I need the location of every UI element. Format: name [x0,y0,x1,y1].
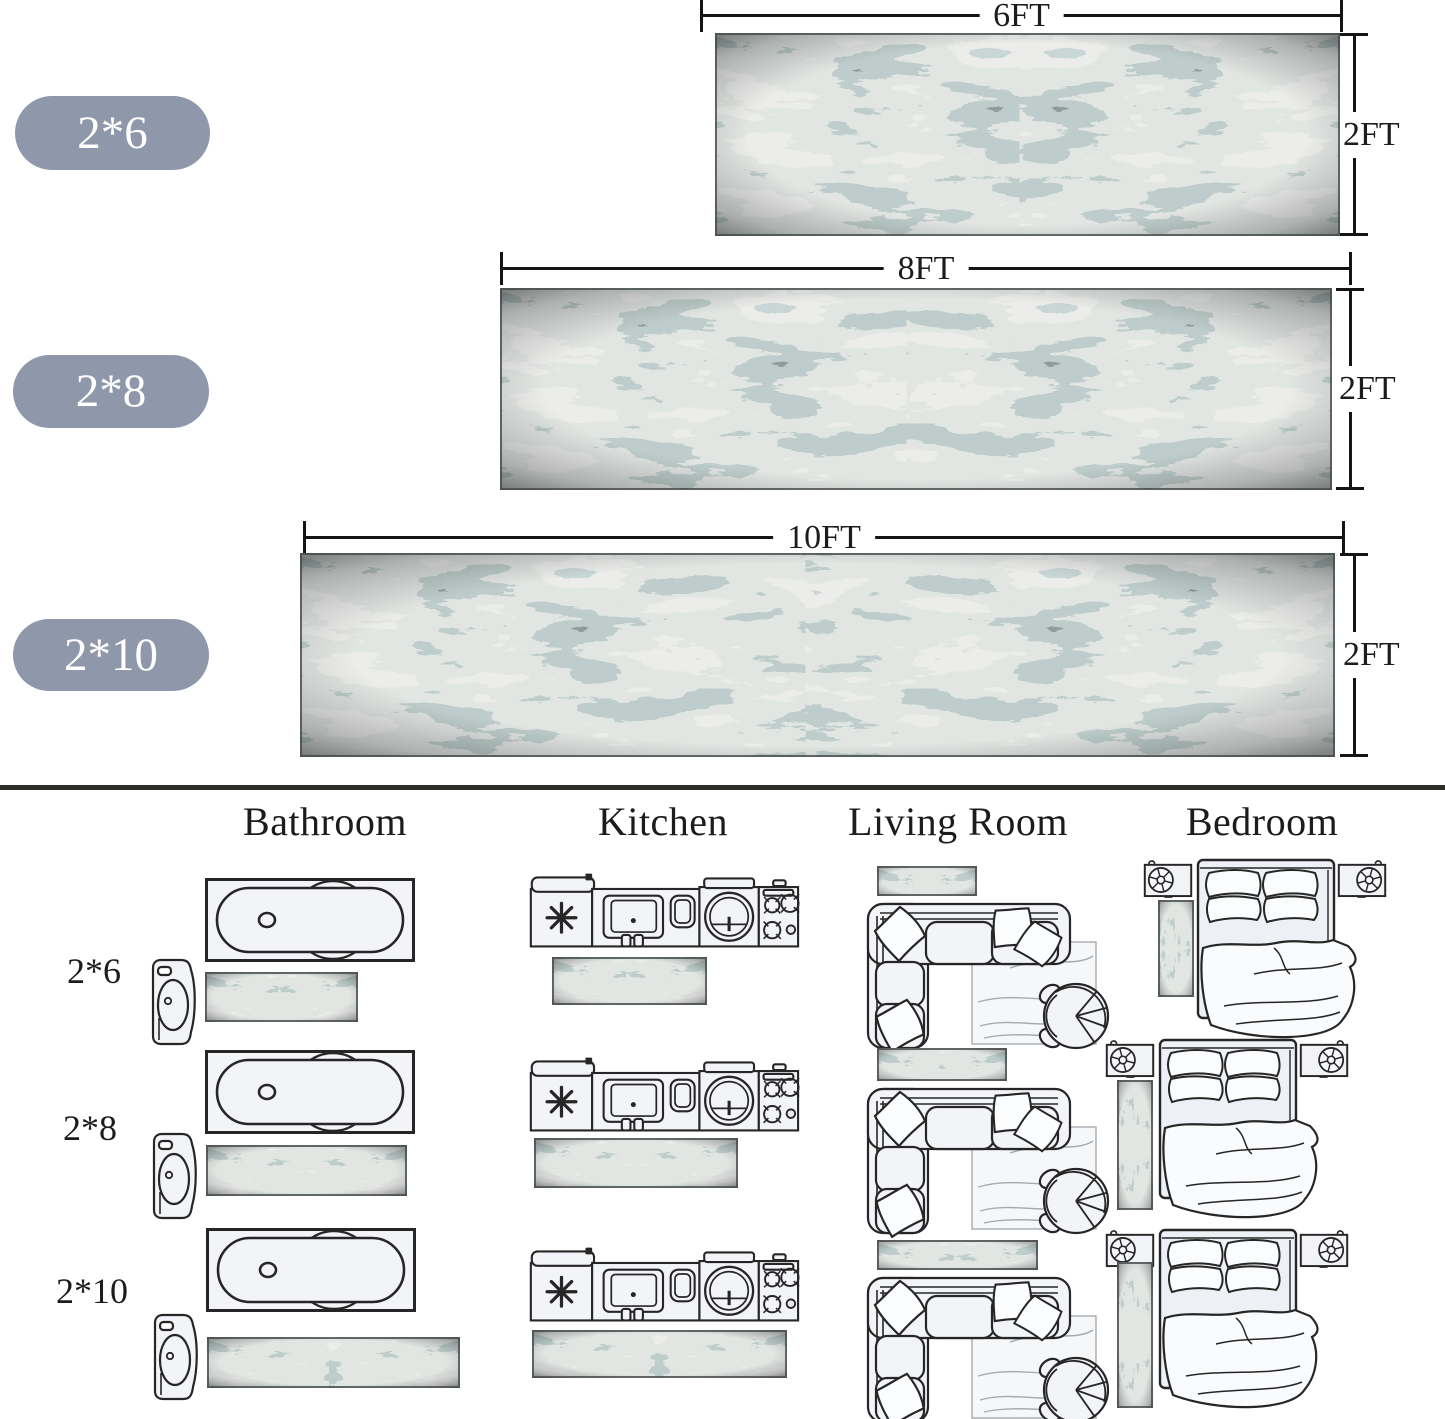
nightstand-icon [1299,1232,1349,1268]
size-badge-2x10: 2*10 [13,619,209,691]
kitchen-rug-2x10 [532,1330,787,1378]
bathtub-icon [206,1228,416,1312]
pedestal-sink-icon [150,1311,200,1403]
size-badge-2x6: 2*6 [15,96,210,170]
bathroom-rug-2x10 [207,1337,460,1388]
row-label-2x10: 2*10 [56,1270,128,1312]
bedroom-rug-2x10 [1117,1262,1153,1408]
length-label-8ft: 8FT [884,252,969,286]
dimension-tick [1340,553,1368,556]
kitchen-counter-icon [527,873,800,949]
dimension-tick [700,0,703,32]
kitchen-counter-icon [527,1057,800,1133]
bathtub-icon [205,878,415,962]
size-badge-label: 2*6 [77,110,148,157]
length-dimension-2x6: 6FT [700,0,1343,32]
kitchen-rug-2x6 [552,957,707,1005]
width-label-2ft: 2FT [1343,632,1400,678]
size-badge-2x8: 2*8 [13,355,209,428]
dimension-tick [1340,754,1368,757]
rug-preview-2x10 [300,553,1335,757]
kitchen-counter-icon [527,1247,800,1323]
dimension-tick [1349,252,1352,285]
dimension-tick [1340,33,1368,36]
rug-preview-2x6 [715,33,1340,236]
length-label-6ft: 6FT [979,0,1064,33]
kitchen-rug-2x8 [534,1138,738,1188]
bedroom-rug-2x6 [1158,900,1194,997]
sectional-sofa-icon [860,1083,1122,1235]
width-dimension-2x8: 2FT [1336,288,1416,490]
column-header-living-room: Living Room [848,798,1068,845]
nightstand-icon [1337,862,1387,898]
column-header-bathroom: Bathroom [243,798,407,845]
living-room-rug-2x6 [877,866,977,896]
length-dimension-2x10: 10FT [303,521,1345,554]
width-label-2ft: 2FT [1339,366,1396,412]
dimension-tick [1336,487,1364,490]
size-badge-label: 2*10 [64,632,158,679]
dimension-tick [1342,521,1345,554]
living-room-rug-2x8 [877,1048,1007,1081]
width-dimension-2x6: 2FT [1340,33,1420,236]
sectional-sofa-icon [860,1272,1122,1419]
nightstand-icon [1105,1042,1155,1078]
nightstand-icon [1299,1042,1349,1078]
rug-size-infographic: 2*6 6FT 2FT 2*8 8FT 2FT 2*10 10FT [0,0,1445,1419]
dimension-tick [500,252,503,285]
length-label-10ft: 10FT [773,521,875,555]
section-divider [0,785,1445,790]
bedroom-rug-2x8 [1117,1080,1153,1210]
dimension-tick [303,521,306,554]
rug-preview-2x8 [500,288,1332,490]
dimension-tick [1340,0,1343,32]
width-dimension-2x10: 2FT [1340,553,1420,757]
size-badge-label: 2*8 [76,368,147,415]
nightstand-icon [1143,862,1193,898]
bathtub-icon [205,1050,415,1134]
sectional-sofa-icon [860,898,1122,1050]
length-dimension-2x8: 8FT [500,252,1352,285]
column-header-bedroom: Bedroom [1186,798,1338,845]
row-label-2x8: 2*8 [63,1107,117,1149]
row-label-2x6: 2*6 [67,950,121,992]
pedestal-sink-icon [148,956,198,1048]
column-header-kitchen: Kitchen [598,798,728,845]
pedestal-sink-icon [149,1130,199,1222]
bathroom-rug-2x8 [206,1145,407,1196]
dimension-tick [1340,233,1368,236]
living-room-rug-2x10 [877,1240,1038,1270]
bathroom-rug-2x6 [205,972,358,1022]
width-label-2ft: 2FT [1343,112,1400,158]
dimension-tick [1336,288,1364,291]
